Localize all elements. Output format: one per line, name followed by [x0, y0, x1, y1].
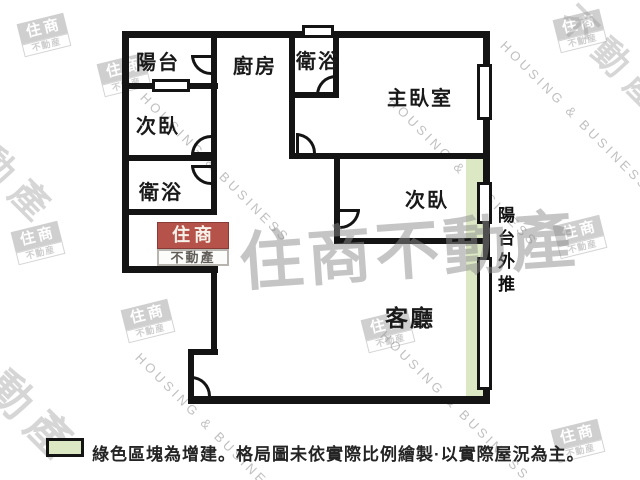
wall-master-bottom: [289, 153, 490, 159]
floorplan-image: 住商 不動産 住商 不動産 住商 不動産 住商 不動産 住商 不動産 住商 不動…: [0, 0, 640, 480]
wall-bedroom-bath-divider: [122, 155, 217, 161]
room-label-kitchen: 廚房: [233, 50, 277, 79]
room-label-living: 客廳: [385, 299, 435, 333]
legend-text: 綠色區塊為增建。格局圖未依實際比例繪製·以實際屋況為主。: [92, 440, 585, 465]
room-label-master: 主臥室: [387, 82, 453, 111]
wall-left: [122, 31, 129, 273]
wall-right-segment: [483, 388, 490, 404]
brand-logo-top: 住商: [157, 222, 229, 249]
window-master-right: [477, 64, 492, 120]
room-label-bath-top: 衛浴: [296, 45, 340, 74]
wall-bath-bottom: [122, 209, 217, 215]
door-arc-master: [296, 133, 316, 153]
brand-stamp-watermark: 住商 不動産: [121, 299, 176, 344]
watermark-brand-cjk: 不動產: [0, 96, 72, 237]
window-top-bath: [302, 25, 334, 38]
room-label-bedroom-left: 次臥: [136, 110, 180, 139]
room-label-balcony: 陽台: [136, 46, 180, 75]
wall-bottom: [188, 396, 490, 404]
window-balcony: [152, 79, 190, 92]
door-arc-entry: [191, 376, 211, 396]
door-arc-balcony: [191, 55, 211, 75]
wall-right-segment: [483, 31, 490, 67]
brand-logo: 住商 不動產: [157, 222, 229, 266]
wall-left-rooms-divider: [211, 31, 217, 215]
wall-corridor-bottom: [122, 266, 218, 273]
door-arc-top-bath: [316, 75, 336, 95]
room-label-bath-left: 衛浴: [139, 176, 183, 205]
brand-stamp-watermark: 住商 不動産: [17, 13, 72, 58]
wall-living-left: [211, 266, 217, 355]
watermark-brand-large: 住商不動產: [236, 188, 582, 303]
door-arc-bath-left: [191, 165, 211, 185]
brand-logo-bottom: 不動產: [157, 249, 229, 266]
wall-right-segment: [483, 118, 490, 184]
legend-swatch: [46, 438, 84, 457]
